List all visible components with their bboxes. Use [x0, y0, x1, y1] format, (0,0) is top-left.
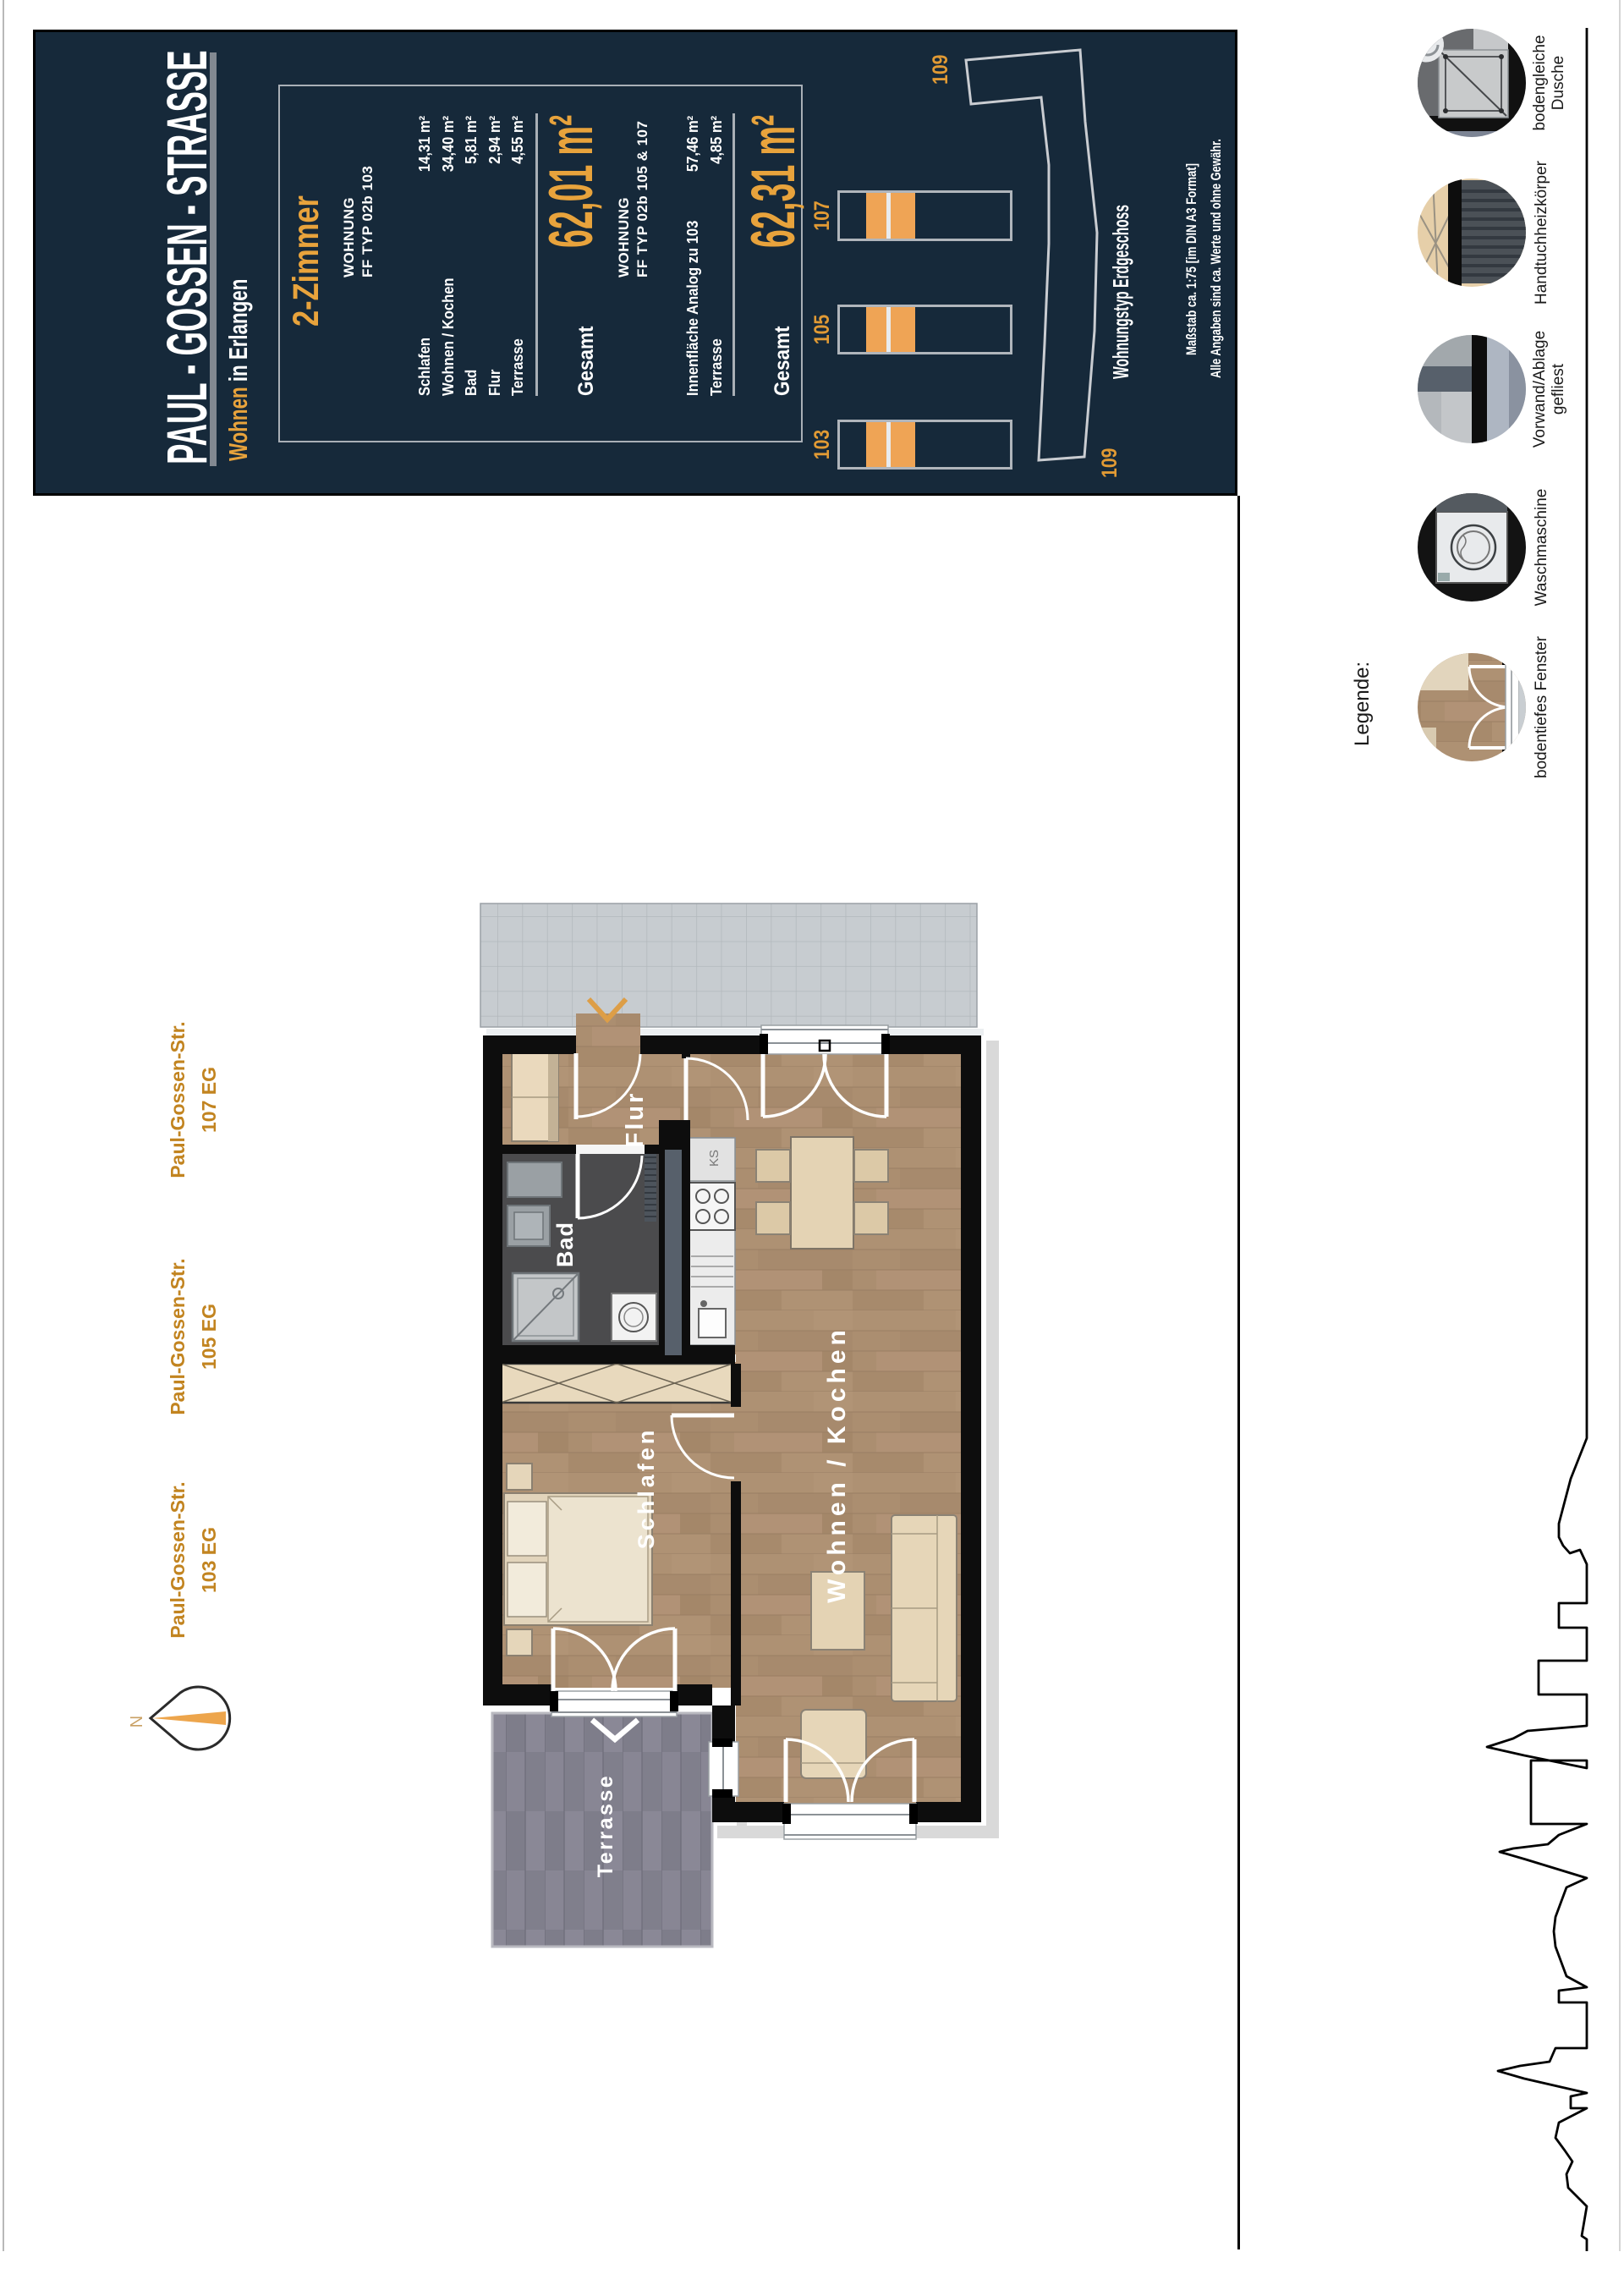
svg-text:Paul-Gossen-Str.: Paul-Gossen-Str. [167, 1021, 189, 1178]
svg-text:Wohnen / Kochen: Wohnen / Kochen [823, 1326, 851, 1603]
svg-text:Flur: Flur [622, 1091, 649, 1148]
svg-text:Terrasse: Terrasse [594, 1774, 617, 1877]
svg-text:Bad: Bad [552, 1222, 578, 1267]
svg-text:Paul-Gossen-Str.: Paul-Gossen-Str. [167, 1481, 189, 1638]
svg-text:103 EG: 103 EG [198, 1527, 220, 1593]
svg-text:107 EG: 107 EG [198, 1067, 220, 1133]
svg-text:Legende:: Legende: [1351, 662, 1374, 746]
svg-text:KS: KS [707, 1150, 721, 1167]
svg-text:N: N [128, 1716, 146, 1727]
svg-text:105 EG: 105 EG [198, 1304, 220, 1370]
svg-text:Paul-Gossen-Str.: Paul-Gossen-Str. [167, 1258, 189, 1414]
svg-text:Schlafen: Schlafen [634, 1427, 659, 1550]
